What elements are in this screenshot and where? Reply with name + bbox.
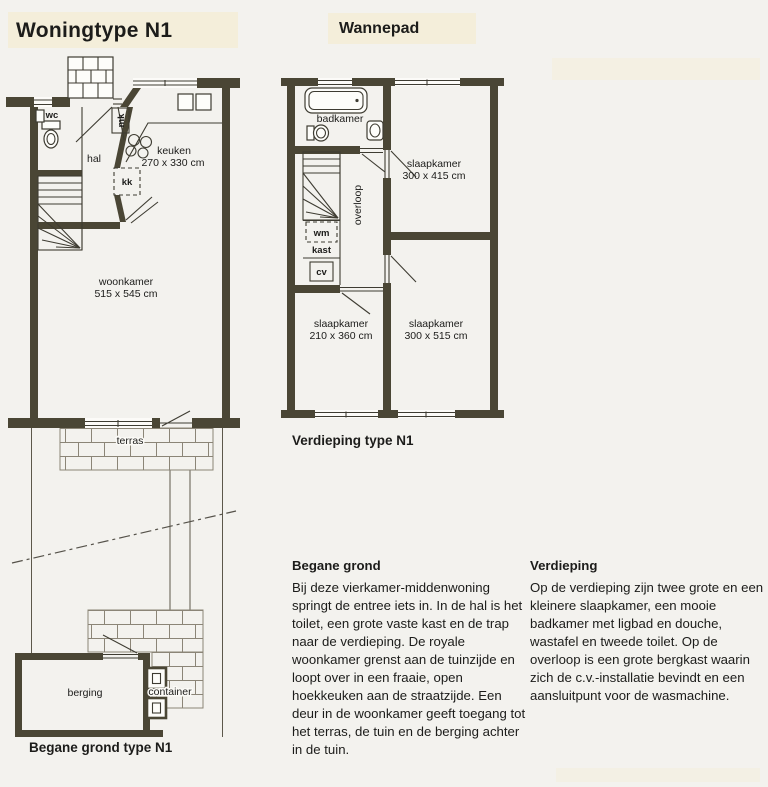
room-slaapkamer2-dims: 210 x 360 cm xyxy=(309,330,372,342)
garden-path-paving xyxy=(88,610,203,652)
toilet-icon xyxy=(42,121,60,148)
room-overloop-label: overloop xyxy=(352,185,364,225)
bathtub-icon xyxy=(305,88,367,113)
page-title: Woningtype N1 xyxy=(16,19,172,43)
room-slaapkamer2-label: slaapkamer xyxy=(314,318,369,330)
room-mk-label: mk xyxy=(116,113,127,127)
upper-floor-plan: badkamer overloop wm kast cv slaapkamer … xyxy=(270,60,510,460)
ground-floor-caption: Begane grond type N1 xyxy=(29,740,172,755)
brochure-page: Woningtype N1 Wannepad xyxy=(0,0,768,787)
container-label: container xyxy=(148,686,192,698)
stairs-icon xyxy=(38,176,82,250)
paper-smudge xyxy=(552,58,760,80)
site-dashed-line xyxy=(12,511,236,563)
ground-floor-plan: wc hal mk kk keuken 270 x 330 cm woonkam… xyxy=(0,50,250,765)
room-cv-label: cv xyxy=(316,267,327,278)
project-title: Wannepad xyxy=(339,20,419,38)
fountain-icon xyxy=(36,110,44,122)
upper-floor-caption: Verdieping type N1 xyxy=(292,433,414,448)
ground-floor-description-body: Bij deze vierkamer-middenwoning springt … xyxy=(292,579,526,759)
stairs-icon xyxy=(303,152,340,220)
washbasin-icon xyxy=(367,121,383,140)
paper-smudge xyxy=(556,768,760,782)
room-woonkamer-label: woonkamer xyxy=(98,276,154,288)
chimney-icon xyxy=(68,57,113,98)
upper-floor-description-heading: Verdieping xyxy=(530,557,764,575)
room-wc-label: wc xyxy=(45,110,59,121)
door-swing-lines xyxy=(76,107,190,658)
room-slaapkamer3-dims: 300 x 515 cm xyxy=(404,330,467,342)
upper-floor-description: Verdieping Op de verdieping zijn twee gr… xyxy=(530,557,764,705)
room-wm-label: wm xyxy=(313,228,330,239)
ground-floor-description-heading: Begane grond xyxy=(292,557,526,575)
room-slaapkamer1-dims: 300 x 415 cm xyxy=(402,170,465,182)
room-kk-label: kk xyxy=(122,177,133,188)
ground-floor-description: Begane grond Bij deze vierkamer-middenwo… xyxy=(292,557,526,759)
room-keuken-label: keuken xyxy=(157,145,191,157)
room-badkamer-label: badkamer xyxy=(317,113,364,125)
room-hal-label: hal xyxy=(87,153,101,165)
room-kast-label: kast xyxy=(312,245,332,256)
room-slaapkamer1-label: slaapkamer xyxy=(407,158,462,170)
room-keuken-dims: 270 x 330 cm xyxy=(141,157,204,169)
room-woonkamer-dims: 515 x 545 cm xyxy=(94,288,157,300)
room-berging-label: berging xyxy=(67,687,102,699)
toilet-icon xyxy=(307,125,329,141)
sink-icon xyxy=(178,94,211,110)
upper-floor-description-body: Op de verdieping zijn twee grote en een … xyxy=(530,579,764,705)
windows xyxy=(34,78,197,428)
terrace-label: terras xyxy=(117,435,144,447)
room-slaapkamer3-label: slaapkamer xyxy=(409,318,464,330)
